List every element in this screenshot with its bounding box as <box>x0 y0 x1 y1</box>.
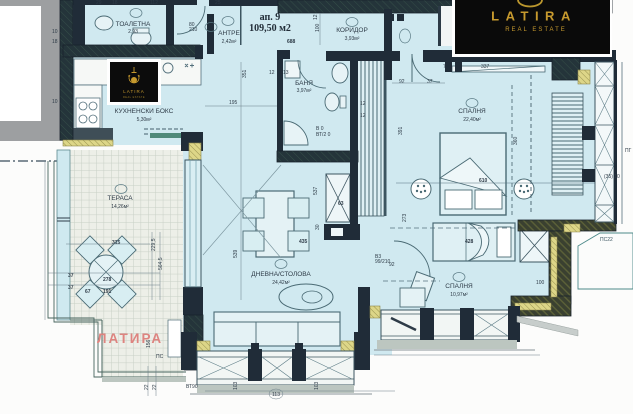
svg-text:LATIRA: LATIRA <box>123 89 144 94</box>
svg-text:428: 428 <box>465 239 474 245</box>
svg-text:688: 688 <box>287 39 296 45</box>
svg-text:537: 537 <box>313 186 319 195</box>
svg-text:ап. 9: ап. 9 <box>260 12 281 23</box>
svg-text:REAL ESTATE: REAL ESTATE <box>123 96 145 99</box>
svg-text:22: 22 <box>152 384 158 390</box>
svg-text:278: 278 <box>103 277 112 283</box>
svg-text:103: 103 <box>233 381 239 390</box>
svg-text:351: 351 <box>242 69 248 78</box>
svg-text:315: 315 <box>112 240 121 246</box>
svg-text:37: 37 <box>427 79 433 85</box>
svg-text:REAL ESTATE: REAL ESTATE <box>505 27 567 33</box>
svg-text:СПАЛНЯ: СПАЛНЯ <box>445 283 473 290</box>
svg-text:109,50 м2: 109,50 м2 <box>249 23 291 34</box>
svg-text:КУХНЕНСКИ БОКС: КУХНЕНСКИ БОКС <box>115 108 174 115</box>
svg-text:435: 435 <box>299 239 308 245</box>
svg-text:12: 12 <box>313 14 319 20</box>
svg-text:37: 37 <box>68 285 74 291</box>
svg-text:12: 12 <box>360 113 366 119</box>
svg-text:103: 103 <box>314 381 320 390</box>
svg-text:ВТ/2 0: ВТ/2 0 <box>316 132 331 138</box>
svg-text:12: 12 <box>269 70 275 76</box>
svg-text:5,30м²: 5,30м² <box>137 117 152 123</box>
svg-text:100: 100 <box>536 280 545 286</box>
svg-text:ПГ: ПГ <box>625 148 632 154</box>
svg-text:100: 100 <box>315 23 321 32</box>
svg-text:СПАЛНЯ: СПАЛНЯ <box>458 108 486 115</box>
svg-text:LATIRA: LATIRA <box>491 9 577 24</box>
svg-text:22,40м²: 22,40м² <box>463 117 481 123</box>
svg-text:29: 29 <box>96 0 102 6</box>
svg-text:10: 10 <box>52 99 58 105</box>
svg-text:АНТРЕ: АНТРЕ <box>218 30 240 37</box>
svg-text:112: 112 <box>150 0 158 6</box>
svg-text:25: 25 <box>215 0 221 6</box>
svg-text:191: 191 <box>103 289 112 295</box>
svg-text:18: 18 <box>52 39 58 45</box>
svg-text:610: 610 <box>479 178 488 184</box>
svg-text:ТОАЛЕТНА: ТОАЛЕТНА <box>116 21 151 28</box>
svg-text:2,42м²: 2,42м² <box>222 39 237 45</box>
svg-text:ПС: ПС <box>156 354 164 360</box>
svg-text:539: 539 <box>233 249 239 258</box>
svg-text:ЛАТИРА: ЛАТИРА <box>97 331 163 346</box>
svg-text:113: 113 <box>272 392 280 398</box>
svg-text:10: 10 <box>52 29 58 35</box>
svg-text:37: 37 <box>68 273 74 279</box>
svg-text:ТЕРАСА: ТЕРАСА <box>107 195 133 202</box>
svg-text:ВТ90: ВТ90 <box>186 384 198 390</box>
svg-text:360: 360 <box>513 136 519 145</box>
svg-text:273: 273 <box>402 213 408 222</box>
svg-text:22: 22 <box>144 384 150 390</box>
svg-text:210: 210 <box>189 27 198 33</box>
svg-text:30: 30 <box>315 224 321 230</box>
svg-text:ДНЕВНА/СТОЛОВА: ДНЕВНА/СТОЛОВА <box>251 271 311 278</box>
svg-text:18: 18 <box>112 0 118 6</box>
svg-text:195: 195 <box>229 100 238 106</box>
svg-text:92: 92 <box>389 262 395 268</box>
svg-text:67: 67 <box>85 289 91 295</box>
svg-text:13: 13 <box>283 70 289 76</box>
svg-text:564,5: 564,5 <box>158 257 164 270</box>
svg-text:92: 92 <box>399 79 405 85</box>
svg-text:10,97м²: 10,97м² <box>450 292 468 298</box>
svg-text:3,93м²: 3,93м² <box>345 36 360 42</box>
svg-text:391: 391 <box>398 126 404 135</box>
svg-text:(35) 10: (35) 10 <box>604 174 620 180</box>
svg-text:12: 12 <box>360 101 366 107</box>
svg-text:ПС22: ПС22 <box>600 237 613 243</box>
svg-text:63: 63 <box>338 201 344 207</box>
svg-text:337: 337 <box>481 64 490 70</box>
svg-text:КОРИДОР: КОРИДОР <box>336 27 368 34</box>
svg-text:24,42м²: 24,42м² <box>272 280 290 286</box>
svg-text:14,26м²: 14,26м² <box>111 204 129 210</box>
svg-text:2,93: 2,93 <box>128 29 138 35</box>
svg-text:3,97м²: 3,97м² <box>297 88 312 94</box>
